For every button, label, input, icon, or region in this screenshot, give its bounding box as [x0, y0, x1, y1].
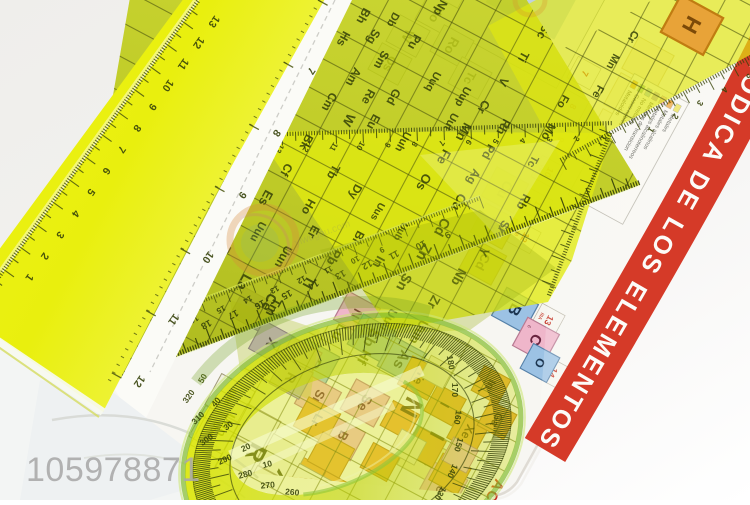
svg-text:170: 170: [450, 383, 460, 397]
svg-text:260: 260: [285, 486, 300, 497]
svg-text:270: 270: [260, 479, 275, 490]
svg-text:105978871: 105978871: [26, 451, 201, 489]
svg-text:160: 160: [452, 410, 464, 426]
